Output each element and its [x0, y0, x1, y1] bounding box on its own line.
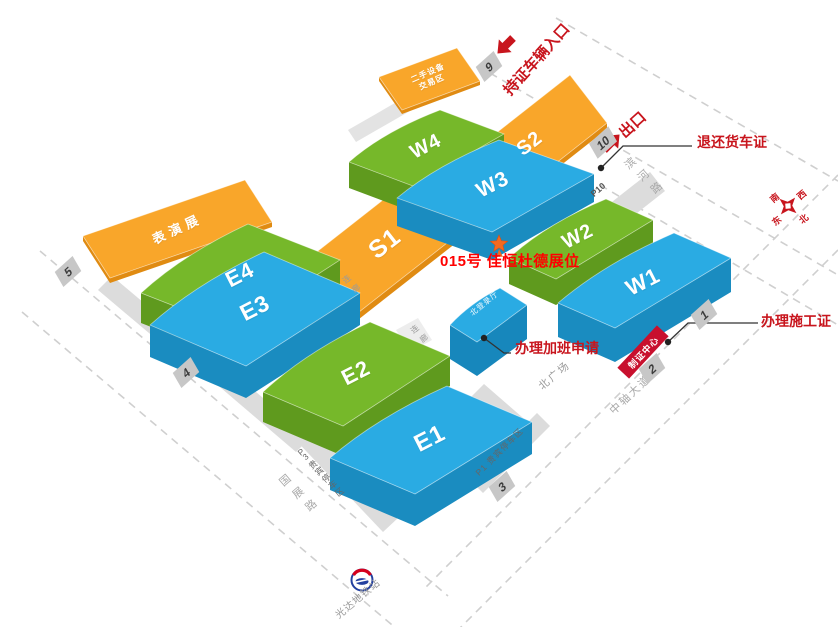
leader-dot: [481, 335, 487, 341]
annotation-booth: 015号 佳恒杜德展位: [440, 250, 580, 271]
annotation-return-truck-pass: 退还货车证: [697, 132, 767, 152]
annotation-overtime-request: 办理加班申请: [515, 338, 599, 358]
leader-dot: [598, 165, 604, 171]
annotation-construction-permit: 办理施工证: [761, 311, 831, 331]
leader-construction-permit: [668, 323, 758, 342]
venue-map: E4 E3 E2 E1 W4 W3 W2 W1 S1 S2 表演展 二手设备 交…: [0, 0, 838, 627]
leader-return-truck-pass: [601, 146, 692, 168]
leader-dot: [665, 339, 671, 345]
